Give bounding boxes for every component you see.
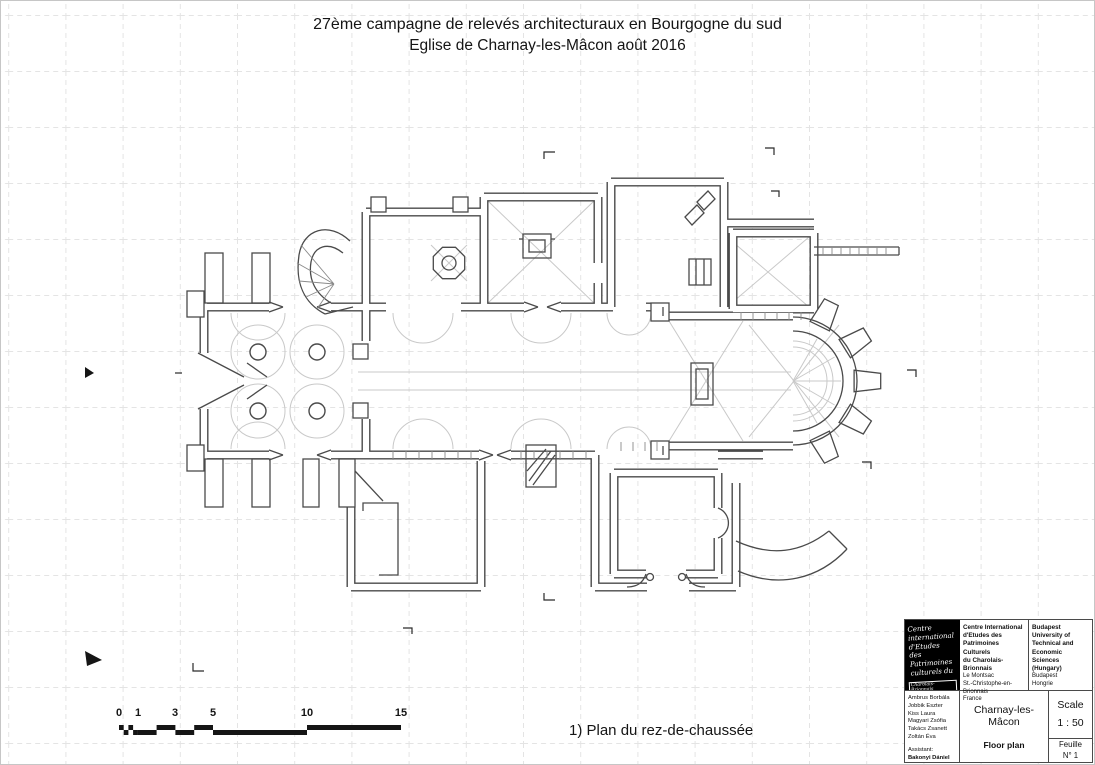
org-bme-name: Budapest University of Technical and Eco…	[1032, 624, 1089, 673]
org-bme-address: Budapest Hongrie	[1032, 673, 1089, 689]
org-ciep-cell: Centre International d'Etudes des Patrim…	[960, 620, 1029, 690]
team-member: Jobbik Eszter	[908, 703, 956, 711]
project-cell: Charnay-les-Mâcon Floor plan	[960, 691, 1049, 762]
title-block-top-row: Centre international d'Etudes des Patrim…	[905, 620, 1092, 691]
scale-label-3: 3	[172, 707, 178, 719]
team-member: Ambrus Borbála	[908, 695, 956, 703]
team-member: Zoltán Éva	[908, 734, 956, 742]
scale-sheet-column: Scale 1 : 50 Feuille N° 1	[1049, 691, 1092, 762]
drawing-sheet: 27ème campagne de relevés architecturaux…	[0, 0, 1095, 765]
ciep-logo-box: Charolais-Brionnais	[909, 679, 958, 690]
team-cell: Ambrus Borbála Jobbik Eszter Kiss Laura …	[905, 691, 960, 762]
assistant-label: Assistant:	[908, 747, 956, 755]
sheet-label: Feuille	[1059, 739, 1082, 751]
scale-label-15: 15	[395, 707, 407, 719]
scale-label-1: 1	[135, 707, 141, 719]
org-ciep-name: Centre International d'Etudes des Patrim…	[963, 624, 1025, 673]
project-subtitle: Floor plan	[983, 740, 1024, 750]
team-member: Kiss Laura	[908, 711, 956, 719]
scale-label-0: 0	[116, 707, 122, 719]
sheet-number: N° 1	[1063, 750, 1078, 762]
plan-caption: 1) Plan du rez-de-chaussée	[569, 722, 753, 739]
title-block: Centre international d'Etudes des Patrim…	[904, 619, 1093, 763]
scale-label-10: 10	[301, 707, 313, 719]
scale-label: Scale	[1057, 699, 1083, 711]
org-bme-cell: Budapest University of Technical and Eco…	[1029, 620, 1092, 690]
title-line-2: Eglise de Charnay-les-Mâcon août 2016	[1, 36, 1094, 56]
team-member: Magyari Zsófia	[908, 718, 956, 726]
title-block-bottom-row: Ambrus Borbála Jobbik Eszter Kiss Laura …	[905, 691, 1092, 762]
team-member: Takács Zsanett	[908, 726, 956, 734]
scale-value: 1 : 50	[1057, 717, 1083, 729]
scale-cell: Scale 1 : 50	[1049, 691, 1092, 739]
title-line-1: 27ème campagne de relevés architecturaux…	[1, 15, 1094, 36]
assistant-name: Bakonyi Dániel	[908, 755, 956, 763]
project-title: Charnay-les-Mâcon	[960, 704, 1048, 728]
sheet-cell: Feuille N° 1	[1049, 739, 1092, 762]
ciep-logo-script: Centre international d'Etudes des Patrim…	[907, 622, 959, 678]
scale-label-5: 5	[210, 707, 216, 719]
sheet-title: 27ème campagne de relevés architecturaux…	[1, 15, 1094, 56]
ciep-logo: Centre international d'Etudes des Patrim…	[905, 620, 960, 690]
